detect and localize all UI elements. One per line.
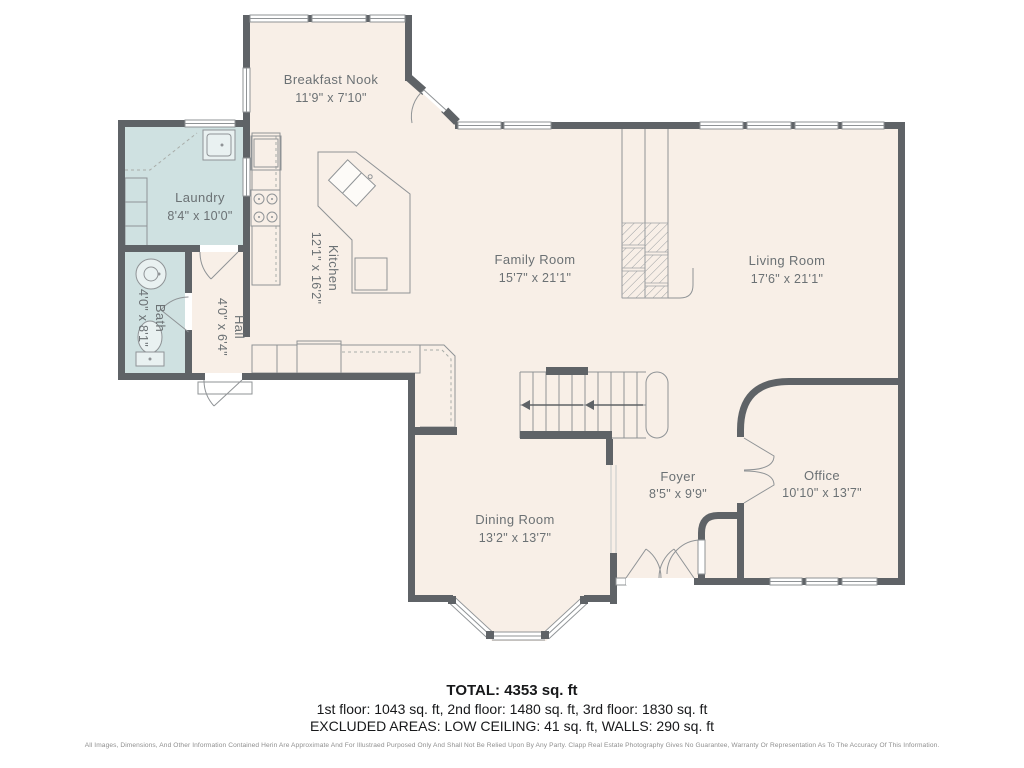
svg-text:Family Room: Family Room xyxy=(495,252,576,267)
svg-text:Hall: Hall xyxy=(232,315,247,339)
laundry-sink-icon xyxy=(203,130,235,160)
stove-icon xyxy=(251,190,280,226)
svg-text:Breakfast Nook: Breakfast Nook xyxy=(284,72,379,87)
floor-plan-page: Breakfast Nook 11'9" x 7'10" Laundry 8'4… xyxy=(0,0,1024,768)
svg-text:11'9" x 7'10": 11'9" x 7'10" xyxy=(295,91,367,105)
svg-text:4'0" x 8'1": 4'0" x 8'1" xyxy=(136,289,150,347)
svg-text:Dining Room: Dining Room xyxy=(475,512,555,527)
svg-text:8'5" x 9'9": 8'5" x 9'9" xyxy=(649,487,707,501)
svg-text:Laundry: Laundry xyxy=(175,190,225,205)
svg-text:Living Room: Living Room xyxy=(749,253,826,268)
svg-text:Bath: Bath xyxy=(153,304,168,332)
stack-hatching xyxy=(622,223,668,298)
svg-text:13'2" x 13'7": 13'2" x 13'7" xyxy=(479,531,551,545)
summary-floors: 1st floor: 1043 sq. ft, 2nd floor: 1480 … xyxy=(0,701,1024,717)
summary-excluded: EXCLUDED AREAS: LOW CEILING: 41 sq. ft, … xyxy=(0,718,1024,734)
svg-text:17'6" x 21'1": 17'6" x 21'1" xyxy=(751,272,823,286)
svg-text:Office: Office xyxy=(804,468,840,483)
svg-text:15'7" x 21'1": 15'7" x 21'1" xyxy=(499,271,571,285)
summary-total: TOTAL: 4353 sq. ft xyxy=(0,682,1024,699)
svg-text:8'4" x 10'0": 8'4" x 10'0" xyxy=(167,209,232,223)
svg-text:12'1" x 16'2": 12'1" x 16'2" xyxy=(309,232,323,304)
floor-plan-svg: Breakfast Nook 11'9" x 7'10" Laundry 8'4… xyxy=(0,0,1024,768)
bath-sink-icon xyxy=(136,259,166,289)
svg-text:4'0" x 6'4": 4'0" x 6'4" xyxy=(215,298,229,356)
summary-disclaimer: All Images, Dimensions, And Other Inform… xyxy=(0,742,1024,749)
svg-text:Kitchen: Kitchen xyxy=(326,245,341,291)
svg-text:Foyer: Foyer xyxy=(660,469,696,484)
svg-text:10'10" x 13'7": 10'10" x 13'7" xyxy=(782,486,862,500)
